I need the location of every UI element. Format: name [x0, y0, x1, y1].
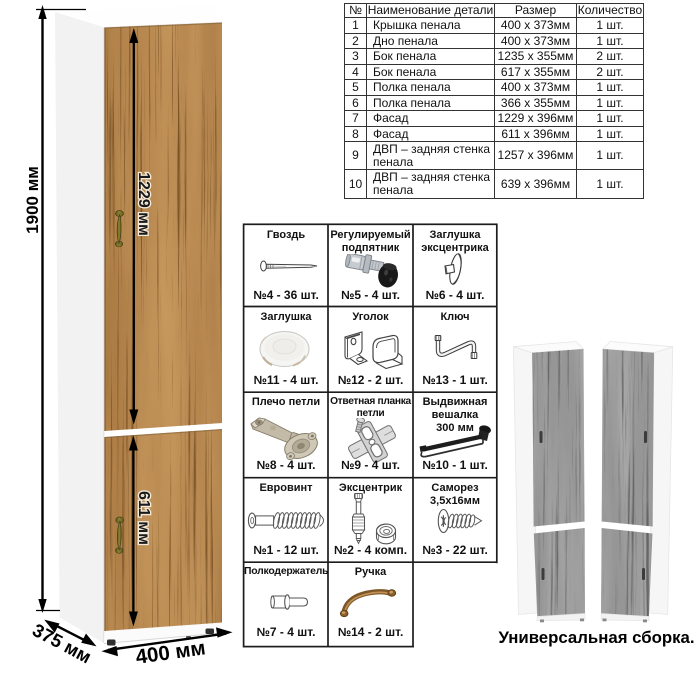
- svg-text:1900 мм: 1900 мм: [23, 166, 42, 234]
- svg-text:1229 мм: 1229 мм: [135, 172, 152, 236]
- svg-text:400 мм: 400 мм: [134, 636, 207, 669]
- svg-text:611 мм: 611 мм: [135, 491, 152, 545]
